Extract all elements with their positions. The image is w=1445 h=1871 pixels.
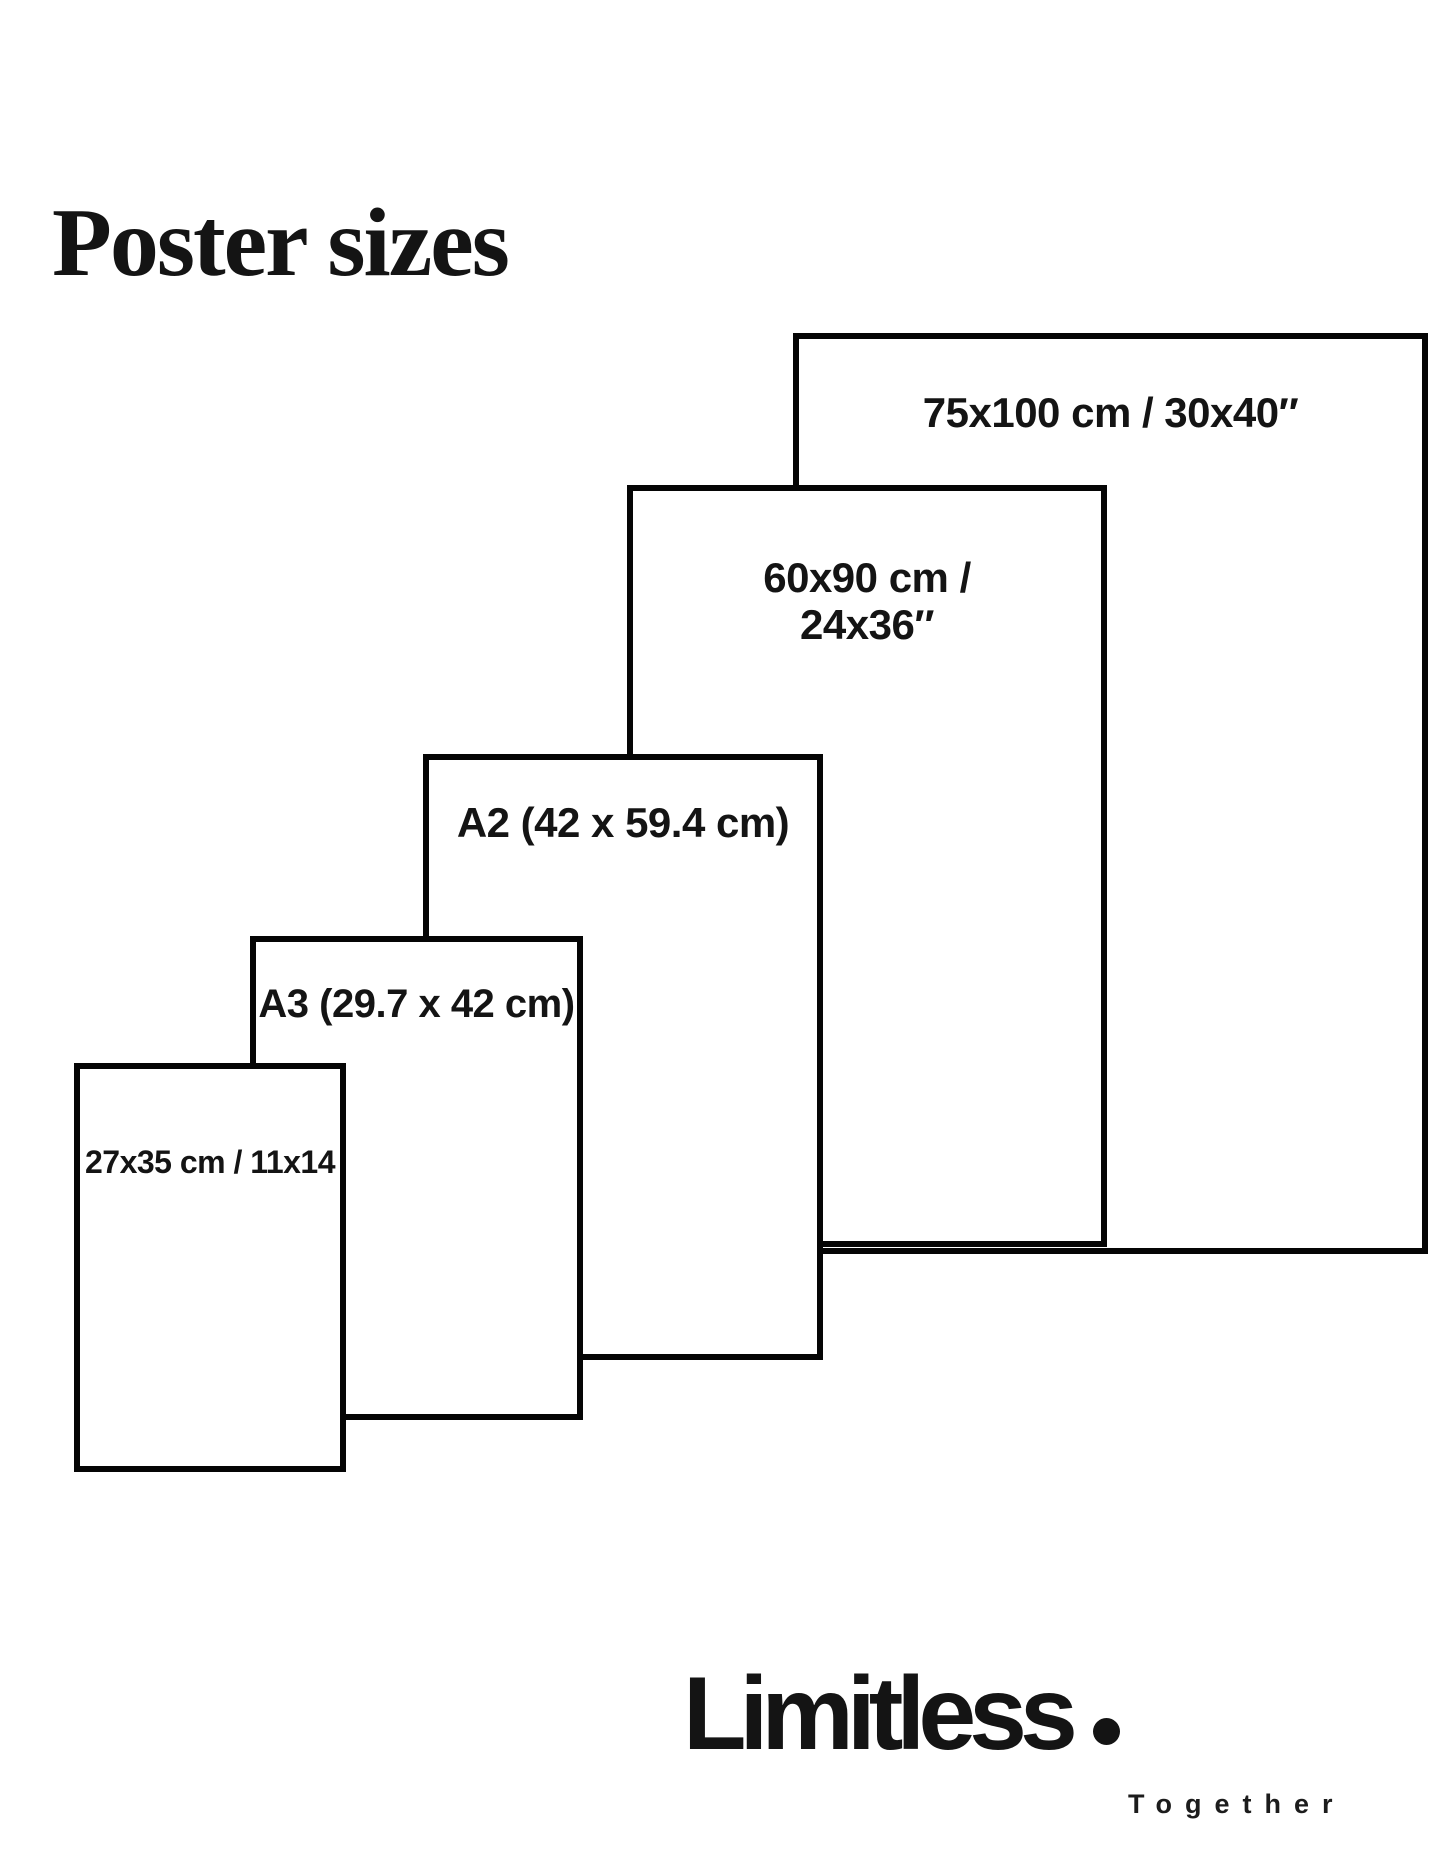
- poster-size-label: A3 (29.7 x 42 cm): [256, 982, 577, 1027]
- poster-size-label: 27x35 cm / 11x14: [80, 1145, 340, 1181]
- poster-size-label: A2 (42 x 59.4 cm): [429, 799, 817, 846]
- poster-size-label: 60x90 cm /24x36″: [633, 554, 1101, 648]
- poster-sizes-infographic: Poster sizes 75x100 cm / 30x40″60x90 cm …: [0, 0, 1445, 1871]
- size-comparison-diagram: 75x100 cm / 30x40″60x90 cm /24x36″A2 (42…: [0, 0, 1445, 1871]
- poster-size-label: 75x100 cm / 30x40″: [799, 389, 1422, 436]
- poster-rect-27x35: 27x35 cm / 11x14: [74, 1063, 346, 1472]
